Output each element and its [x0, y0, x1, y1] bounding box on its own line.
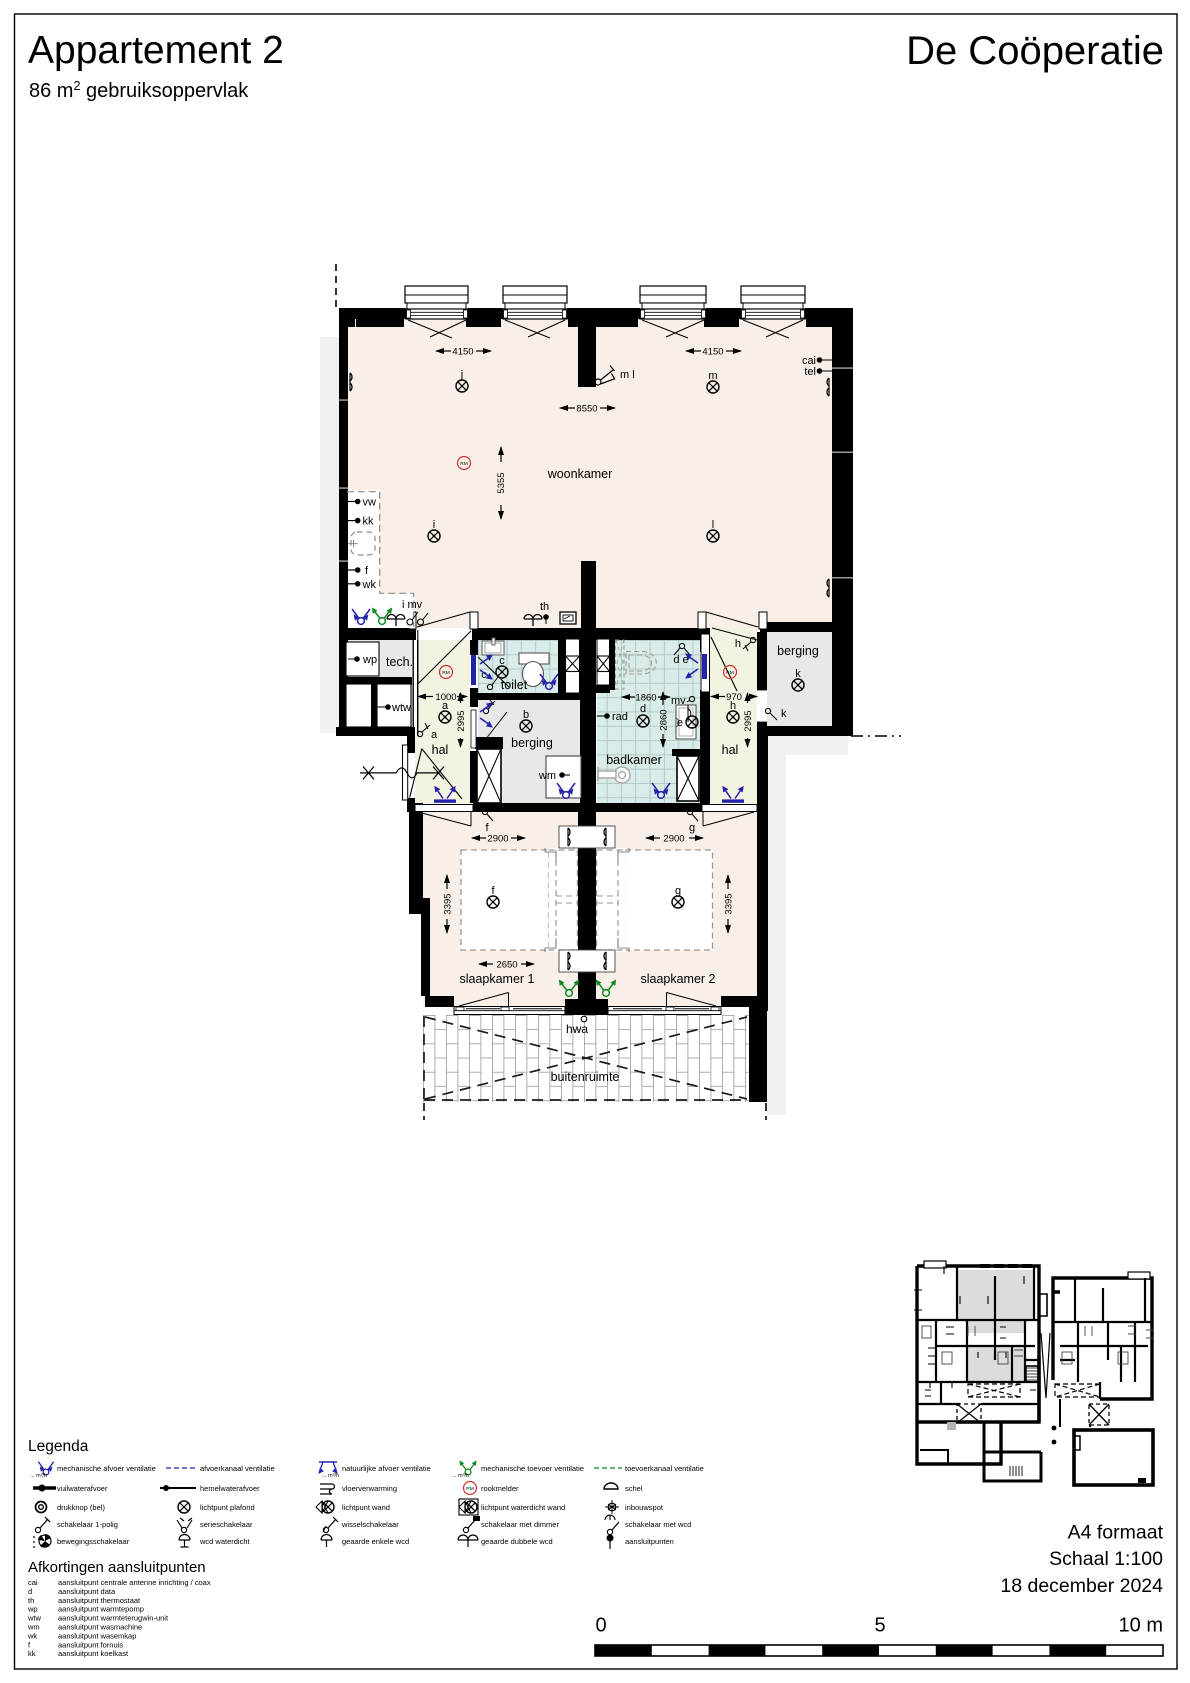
- svg-text:bewegingsschakelaar: bewegingsschakelaar: [57, 1537, 130, 1546]
- svg-text:vuilwaterafvoer: vuilwaterafvoer: [57, 1484, 108, 1493]
- svg-text:... m³/h: ... m³/h: [322, 1473, 339, 1479]
- svg-text:3395: 3395: [443, 893, 454, 914]
- svg-text:aansluitpunt warmteterugwin-un: aansluitpunt warmteterugwin-unit: [58, 1614, 169, 1623]
- svg-text:h: h: [735, 638, 741, 650]
- svg-text:aansluitpunt warmtepomp: aansluitpunt warmtepomp: [58, 1605, 144, 1614]
- svg-text:d e: d e: [673, 654, 688, 666]
- svg-text:i mv: i mv: [402, 599, 423, 611]
- svg-text:drukknop (bel): drukknop (bel): [57, 1503, 105, 1512]
- svg-text:Legenda: Legenda: [28, 1438, 89, 1455]
- svg-text:j: j: [460, 369, 463, 381]
- svg-text:wk: wk: [362, 579, 377, 591]
- svg-text:5: 5: [874, 1615, 885, 1637]
- svg-text:wp: wp: [362, 654, 377, 666]
- svg-text:g: g: [689, 822, 695, 834]
- svg-text:2650: 2650: [496, 960, 517, 971]
- svg-text:schel: schel: [625, 1484, 643, 1493]
- svg-text:Appartement 2: Appartement 2: [28, 29, 284, 72]
- svg-text:aansluitpunt wasmachine: aansluitpunt wasmachine: [58, 1623, 142, 1632]
- svg-text:d: d: [640, 703, 646, 715]
- svg-text:woonkamer: woonkamer: [547, 467, 613, 481]
- svg-text:geaarde enkele wcd: geaarde enkele wcd: [342, 1537, 409, 1546]
- svg-text:10 m: 10 m: [1119, 1615, 1163, 1637]
- svg-text:k: k: [781, 708, 787, 720]
- svg-text:... m³/h: ... m³/h: [30, 1473, 47, 1479]
- svg-text:geaarde dubbele wcd: geaarde dubbele wcd: [481, 1537, 553, 1546]
- svg-text:aansluitpunt fornuis: aansluitpunt fornuis: [58, 1640, 123, 1649]
- svg-text:tech.: tech.: [386, 655, 413, 669]
- svg-text:mechanische afvoer ventilatie: mechanische afvoer ventilatie: [57, 1464, 156, 1473]
- svg-text:Schaal 1:100: Schaal 1:100: [1049, 1548, 1163, 1570]
- svg-text:4150: 4150: [452, 347, 473, 358]
- svg-text:th: th: [540, 601, 549, 613]
- svg-text:buitenruimte: buitenruimte: [551, 1070, 620, 1084]
- svg-text:cai: cai: [28, 1578, 38, 1587]
- svg-text:lichtpunt waterdicht wand: lichtpunt waterdicht wand: [481, 1503, 565, 1512]
- svg-text:m: m: [708, 370, 717, 382]
- svg-text:vloerverwarming: vloerverwarming: [342, 1484, 397, 1493]
- svg-text:2900: 2900: [487, 834, 508, 845]
- svg-text:g: g: [675, 885, 681, 897]
- svg-text:wk: wk: [27, 1631, 37, 1640]
- svg-text:2860: 2860: [659, 709, 670, 730]
- svg-text:berging: berging: [777, 644, 819, 658]
- svg-text:18 december 2024: 18 december 2024: [1000, 1575, 1163, 1597]
- svg-text:wtw: wtw: [27, 1614, 42, 1623]
- svg-text:a: a: [431, 729, 438, 741]
- svg-text:wisselschakelaar: wisselschakelaar: [341, 1520, 399, 1529]
- svg-text:... m³/h: ... m³/h: [452, 1473, 469, 1479]
- svg-text:0: 0: [595, 1615, 606, 1637]
- svg-text:hal: hal: [722, 743, 739, 757]
- svg-text:lichtpunt plafond: lichtpunt plafond: [200, 1503, 255, 1512]
- svg-text:wm: wm: [538, 770, 556, 782]
- svg-text:wm: wm: [27, 1623, 40, 1632]
- svg-text:c: c: [499, 655, 505, 667]
- svg-text:tel: tel: [804, 366, 816, 378]
- svg-text:Afkortingen aansluitpunten: Afkortingen aansluitpunten: [28, 1559, 206, 1576]
- svg-text:2995: 2995: [456, 710, 467, 731]
- svg-text:b: b: [523, 709, 529, 721]
- svg-text:hal: hal: [432, 743, 449, 757]
- svg-text:i: i: [433, 519, 435, 531]
- svg-text:schakelaar met dimmer: schakelaar met dimmer: [481, 1520, 559, 1529]
- svg-text:rad: rad: [612, 711, 628, 723]
- svg-text:lichtpunt wand: lichtpunt wand: [342, 1503, 390, 1512]
- svg-text:3395: 3395: [724, 893, 735, 914]
- svg-text:inbouwspot: inbouwspot: [625, 1503, 664, 1512]
- svg-text:schakelaar met wcd: schakelaar met wcd: [625, 1520, 691, 1529]
- svg-text:schakelaar 1-polig: schakelaar 1-polig: [57, 1520, 118, 1529]
- svg-text:l: l: [712, 519, 714, 531]
- svg-text:rookmelder: rookmelder: [481, 1484, 519, 1493]
- svg-text:k: k: [795, 668, 801, 680]
- svg-text:aansluitpunt data: aansluitpunt data: [58, 1587, 116, 1596]
- svg-text:5355: 5355: [496, 472, 507, 493]
- svg-text:mv: mv: [671, 695, 686, 707]
- svg-text:kk: kk: [363, 516, 375, 528]
- svg-text:1860: 1860: [635, 693, 656, 704]
- svg-text:2900: 2900: [663, 834, 684, 845]
- svg-text:badkamer: badkamer: [606, 753, 662, 767]
- svg-text:De Coöperatie: De Coöperatie: [906, 29, 1164, 73]
- svg-text:hemelwaterafvoer: hemelwaterafvoer: [200, 1484, 260, 1493]
- svg-text:toevoerkanaal ventilatie: toevoerkanaal ventilatie: [625, 1464, 704, 1473]
- svg-text:afvoerkanaal ventilatie: afvoerkanaal ventilatie: [200, 1464, 275, 1473]
- svg-text:hwa: hwa: [566, 1022, 588, 1036]
- svg-text:e: e: [677, 717, 683, 729]
- svg-text:aansluitpunt thermostaat: aansluitpunt thermostaat: [58, 1596, 141, 1605]
- svg-text:mechanische toevoer ventilatie: mechanische toevoer ventilatie: [481, 1464, 584, 1473]
- svg-text:vw: vw: [363, 497, 377, 509]
- svg-text:berging: berging: [511, 736, 553, 750]
- svg-text:wtw: wtw: [391, 702, 411, 714]
- svg-text:slaapkamer 2: slaapkamer 2: [640, 972, 715, 986]
- svg-text:slaapkamer 1: slaapkamer 1: [459, 972, 534, 986]
- svg-text:toilet: toilet: [501, 678, 528, 692]
- svg-text:A4 formaat: A4 formaat: [1068, 1522, 1164, 1544]
- svg-text:serieschakelaar: serieschakelaar: [200, 1520, 253, 1529]
- svg-text:wcd waterdicht: wcd waterdicht: [199, 1537, 251, 1546]
- svg-text:kk: kk: [28, 1649, 36, 1658]
- svg-text:th: th: [28, 1596, 34, 1605]
- svg-text:wp: wp: [27, 1605, 38, 1614]
- svg-text:86 m2 gebruiksoppervlak: 86 m2 gebruiksoppervlak: [29, 79, 249, 102]
- svg-text:2995: 2995: [743, 710, 754, 731]
- svg-text:970: 970: [726, 692, 742, 703]
- svg-text:d: d: [28, 1587, 32, 1596]
- svg-text:aansluitpunten: aansluitpunten: [625, 1537, 674, 1546]
- svg-text:m l: m l: [620, 369, 635, 381]
- svg-text:aansluitpunt koelkast: aansluitpunt koelkast: [58, 1649, 129, 1658]
- svg-text:aansluitpunt wasemkap: aansluitpunt wasemkap: [58, 1631, 136, 1640]
- svg-text:1000: 1000: [435, 692, 456, 703]
- svg-text:4150: 4150: [702, 347, 723, 358]
- svg-text:natuurlijke afvoer ventilatie: natuurlijke afvoer ventilatie: [342, 1464, 431, 1473]
- svg-text:8550: 8550: [576, 404, 597, 415]
- svg-text:aansluitpunt centrale antenne: aansluitpunt centrale antenne inrichting…: [58, 1578, 211, 1587]
